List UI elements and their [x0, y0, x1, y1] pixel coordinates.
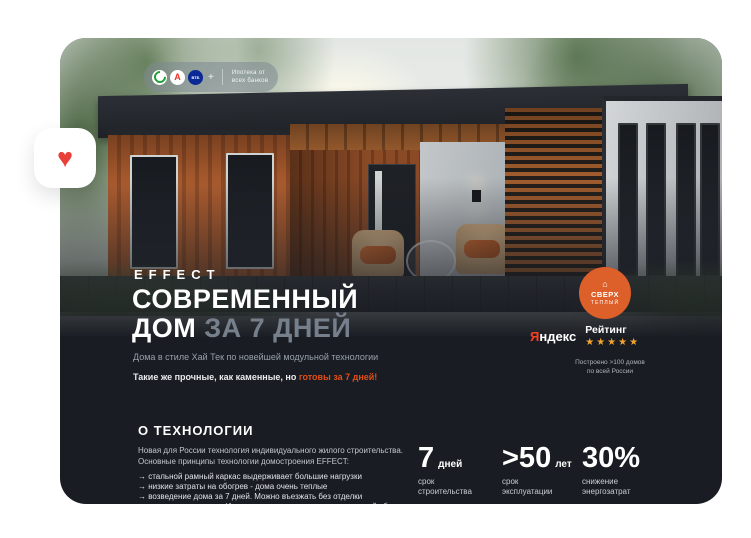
bullet-item: → возведение дома за 7 дней. Можно въезж… — [138, 492, 405, 502]
super-warm-badge: ⌂ СВЕРХ ТЕПЛЫЙ — [579, 267, 631, 319]
bullet-item: → стальной рамный каркас выдерживает бол… — [138, 472, 405, 482]
tagline-accent: готовы за 7 дней! — [299, 372, 377, 382]
title-line2: ДОМ ЗА 7 ДНЕЙ — [132, 314, 358, 343]
rating-note-line1: Построено >100 домов — [530, 358, 690, 367]
stat-build-time: 7дней срокстроительства — [418, 443, 472, 497]
stat-unit: дней — [438, 459, 462, 470]
mortgage-badge-text: Ипотека от всех банков — [232, 69, 268, 85]
stat-caption-line2: эксплуатации — [502, 487, 572, 497]
hero-tagline: Такие же прочные, как каменные, но готов… — [133, 372, 377, 382]
vtb-bank-icon: ВТБ — [188, 70, 203, 85]
yandex-logo-rest: ндекс — [539, 329, 576, 344]
technology-heading: О ТЕХНОЛОГИИ — [138, 423, 253, 438]
favorite-button[interactable]: ♥ — [34, 128, 96, 188]
heart-icon: ♥ — [57, 145, 73, 172]
technology-intro-line2: Основные принципы технологии домостроени… — [138, 456, 403, 467]
hero-subtitle: Дома в стиле Хай Тек по новейшей модульн… — [133, 352, 378, 362]
technology-intro-line1: Новая для России технология индивидуальн… — [138, 445, 403, 456]
stat-energy-saving: 30% снижениеэнергозатрат — [582, 443, 644, 497]
technology-bullets: → стальной рамный каркас выдерживает бол… — [138, 472, 405, 504]
stat-unit: лет — [555, 459, 572, 470]
stat-caption-line2: строительства — [418, 487, 472, 497]
tagline-plain: Такие же прочные, как каменные, но — [133, 372, 299, 382]
sber-bank-icon — [152, 70, 167, 85]
mortgage-line1: Ипотека от — [232, 70, 266, 76]
title-line2-dim: ЗА 7 ДНЕЙ — [204, 313, 351, 343]
landing-card: А ВТБ + Ипотека от всех банков ⌂ СВЕРХ Т… — [60, 38, 722, 504]
yandex-rating: Яндекс Рейтинг ★★★★★ — [530, 324, 640, 348]
mortgage-line2: всех банков — [232, 78, 268, 84]
mortgage-banks-badge[interactable]: А ВТБ + Ипотека от всех банков — [144, 62, 278, 92]
stat-value: 7 — [418, 443, 434, 473]
stat-lifetime: >50лет срокэксплуатации — [502, 443, 572, 497]
bullet-item: → заводское качество. Исключена вероятно… — [138, 502, 405, 504]
stat-value: 30% — [582, 443, 640, 473]
stat-caption-line1: срок — [502, 477, 572, 487]
yandex-logo: Яндекс — [530, 329, 576, 344]
title-line2-white: ДОМ — [132, 313, 204, 343]
house-icon: ⌂ — [602, 280, 607, 289]
bullet-item: → низкие затраты на обогрев - дома очень… — [138, 482, 405, 492]
divider — [222, 69, 223, 85]
rating-label: Рейтинг — [585, 324, 640, 336]
stat-caption-line1: срок — [418, 477, 472, 487]
technology-intro: Новая для России технология индивидуальн… — [138, 445, 403, 467]
stat-value: >50 — [502, 443, 551, 473]
yandex-logo-red: Я — [530, 329, 539, 344]
stat-caption-line2: энергозатрат — [582, 487, 644, 497]
rating-stars-icon: ★★★★★ — [585, 337, 640, 348]
title-line1: СОВРЕМЕННЫЙ — [132, 285, 358, 314]
alfa-bank-icon: А — [170, 70, 185, 85]
warm-badge-line2: ТЕПЛЫЙ — [591, 300, 619, 306]
plus-icon: + — [208, 72, 214, 83]
stat-caption-line1: снижение — [582, 477, 644, 487]
warm-badge-line1: СВЕРХ — [591, 290, 619, 299]
page-title: СОВРЕМЕННЫЙ ДОМ ЗА 7 ДНЕЙ — [132, 285, 358, 343]
brand-logo: EFFECT — [134, 267, 221, 282]
rating-note-line2: по всей России — [530, 367, 690, 376]
rating-note: Построено >100 домов по всей России — [530, 358, 690, 376]
